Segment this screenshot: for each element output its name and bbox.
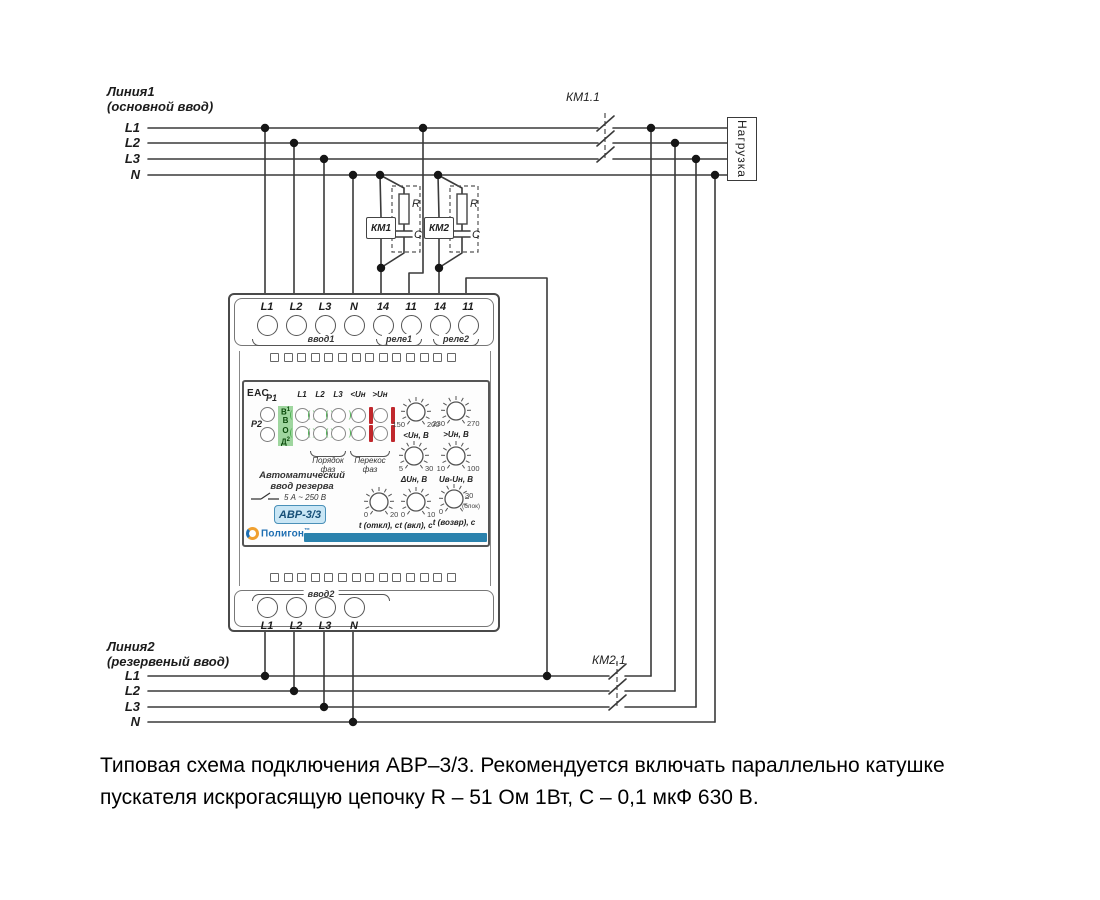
terminal-label: 14 <box>369 301 397 313</box>
contact-rating: 5 А ~ 250 В <box>250 492 326 502</box>
vent-slot <box>379 353 388 362</box>
wire-label-line2-N: N <box>110 714 140 729</box>
terminal-label: N <box>340 620 368 632</box>
knob-scale-min: 0 <box>385 510 405 519</box>
led-<Uн-row2 <box>351 426 366 441</box>
terminal-top-11-5: 11 <box>397 301 425 336</box>
terminal-screw <box>344 315 365 336</box>
line2-device-drops <box>265 632 353 722</box>
vent-slot <box>406 573 415 582</box>
device-title-line2: ввод резерва <box>250 481 354 492</box>
knob-caption: t (возвр), с <box>416 518 492 527</box>
wire-label-line2-L3: L3 <box>110 699 140 714</box>
knob-scale-min: 10 <box>425 464 445 473</box>
vent-slot <box>297 573 306 582</box>
terminal-top-11-7: 11 <box>454 301 482 336</box>
wire-label-line1-L1: L1 <box>110 120 140 135</box>
led-column-header: L1 <box>292 390 312 399</box>
p2-label: P2 <box>251 419 262 429</box>
terminal-screw <box>286 597 307 618</box>
wire-label-line1-L3: L3 <box>110 151 140 166</box>
led-column-header: L3 <box>328 390 348 399</box>
terminal-label: N <box>340 301 368 313</box>
knob-scale-min: 0 <box>348 510 368 519</box>
wire-label-line2-L1: L1 <box>110 668 140 683</box>
vent-slot <box>392 353 401 362</box>
knob-scale-max: 100 <box>467 464 487 473</box>
terminal-screw <box>344 597 365 618</box>
terminal-label: L3 <box>311 620 339 632</box>
vent-slot <box>379 573 388 582</box>
line1-title-text: Линия1 <box>107 84 213 99</box>
knob-scale-min: 5 <box>383 464 403 473</box>
group-rele1-bracket: реле1 <box>376 339 422 346</box>
brand-icon <box>246 527 259 540</box>
line1-subtitle: (основной ввод) <box>107 99 213 114</box>
knob-note: (блок) <box>462 503 488 510</box>
resistor2-label: R <box>470 198 478 210</box>
wire-label-line1-L2: L2 <box>110 135 140 150</box>
terminal-screw <box>430 315 451 336</box>
terminal-screw <box>257 315 278 336</box>
right-sidewall <box>490 351 491 586</box>
resistor2 <box>457 194 467 224</box>
vent-slot <box>406 353 415 362</box>
p1-led <box>260 407 275 422</box>
knob-scale-min: 150 <box>385 420 405 429</box>
terminal-screw <box>373 315 394 336</box>
terminal-label: L3 <box>311 301 339 313</box>
line2-wires <box>148 676 715 722</box>
group-rele2-label: реле2 <box>439 334 473 344</box>
vent-slot <box>392 573 401 582</box>
vent-slot <box>270 573 279 582</box>
capacitor2-label: C <box>472 229 480 241</box>
model-badge: АВР-3/3 <box>274 505 326 524</box>
terminal-label: 14 <box>426 301 454 313</box>
km21-label: КМ2.1 <box>592 653 626 667</box>
load-box: Нагрузка <box>727 117 757 181</box>
load-verticals <box>651 128 715 722</box>
terminal-top-L2-1: L2 <box>282 301 310 336</box>
led-L3-row1 <box>331 408 346 423</box>
wire-label-line1-N: N <box>110 167 140 182</box>
vent-slot <box>352 353 361 362</box>
terminal-top-N-3: N <box>340 301 368 336</box>
vent-slot <box>420 573 429 582</box>
terminal-screw <box>401 315 422 336</box>
vent-slot <box>311 353 320 362</box>
vent-slot <box>447 573 456 582</box>
front-panel: ЕАС P1 P2 В1ВОД2 L1L2L3<Uн>Uн Порядок фа… <box>242 380 490 547</box>
vent-slot <box>284 353 293 362</box>
terminal-bottom-L1: L1 <box>253 587 281 632</box>
terminal-bottom-N: N <box>340 587 368 632</box>
schematic-canvas: Линия1 (основной ввод) Линия2 (резервены… <box>0 0 1100 900</box>
vent-slot <box>420 353 429 362</box>
knob-2: 230270>Uн, В <box>424 391 488 441</box>
brand-bar <box>304 533 487 542</box>
terminal-bottom-L2: L2 <box>282 587 310 632</box>
vent-slot <box>297 353 306 362</box>
line1-wires <box>148 128 727 175</box>
vent-slot <box>324 353 333 362</box>
vent-slot <box>324 573 333 582</box>
km1-coil-box: КМ1 <box>366 217 396 239</box>
vent-slot <box>365 573 374 582</box>
capacitor1-label: C <box>414 229 422 241</box>
terminal-screw <box>257 597 278 618</box>
terminal-label: L1 <box>253 620 281 632</box>
knob-scale-max: 30 <box>465 491 485 500</box>
bottom-terminals-row: L1L2L3N <box>230 587 498 633</box>
vent-slot <box>447 353 456 362</box>
line2-title: Линия2 (резервеный ввод) <box>107 639 229 669</box>
brand-logo: Полигон™ <box>246 527 310 540</box>
vent-slot <box>311 573 320 582</box>
line2-subtitle: (резервеный ввод) <box>107 654 229 669</box>
terminal-label: L1 <box>253 301 281 313</box>
terminal-top-L1-0: L1 <box>253 301 281 336</box>
led-<Uн-row1 <box>351 408 366 423</box>
vent-slot <box>338 353 347 362</box>
p1-label: P1 <box>266 393 277 403</box>
wire-label-line2-L2: L2 <box>110 683 140 698</box>
relay1-common-feed <box>409 128 423 293</box>
led-column-L3: L3 <box>328 390 348 452</box>
avr-device: L1L2L3N14111411 ввод1 реле1 реле2 ЕАС P1… <box>228 293 500 632</box>
terminal-label: 11 <box>397 301 425 313</box>
p2-led <box>260 427 275 442</box>
terminal-label: L2 <box>282 301 310 313</box>
vent-slot <box>352 573 361 582</box>
terminal-top-L3-2: L3 <box>311 301 339 336</box>
rating-text: 5 А ~ 250 В <box>284 493 326 502</box>
vent-slot <box>433 353 442 362</box>
brand-text: Полигон <box>261 528 304 539</box>
terminal-screw <box>458 315 479 336</box>
terminal-top-14-6: 14 <box>426 301 454 336</box>
contact-symbol-icon <box>250 492 280 502</box>
load-label: Нагрузка <box>735 120 749 178</box>
terminal-bottom-L3: L3 <box>311 587 339 632</box>
group-vvod1-bracket: ввод1 <box>252 339 390 346</box>
led-column-<Uн: <Uн <box>348 390 368 452</box>
vent-slot <box>338 573 347 582</box>
brand-name: Полигон™ <box>261 528 310 539</box>
group-vvod1-label: ввод1 <box>304 334 339 344</box>
km11-label: КМ1.1 <box>566 90 600 104</box>
terminal-top-14-4: 14 <box>369 301 397 336</box>
led-column-L1: L1 <box>292 390 312 452</box>
caption-text: Типовая схема подключения АВР–3/3. Реком… <box>100 750 1015 813</box>
group-rele1-label: реле1 <box>382 334 416 344</box>
led-column-header: <Uн <box>348 390 368 399</box>
resistor1 <box>399 194 409 224</box>
knob-7: 030(блок)t (возвр), с <box>422 479 486 529</box>
device-title-line1: Автоматический <box>250 470 354 481</box>
left-sidewall <box>239 351 240 586</box>
knob-scale-min: 0 <box>423 507 443 516</box>
km2-coil-box: КМ2 <box>424 217 454 239</box>
group-rele2-bracket: реле2 <box>433 339 479 346</box>
terminal-screw <box>315 315 336 336</box>
led-column-header: L2 <box>310 390 330 399</box>
vent-slot <box>270 353 279 362</box>
line1-device-drops <box>265 128 353 293</box>
led-column-L2: L2 <box>310 390 330 452</box>
vent-slot <box>365 353 374 362</box>
vent-slot <box>284 573 293 582</box>
line1-title: Линия1 (основной ввод) <box>107 84 213 114</box>
led-L3-row2 <box>331 426 346 441</box>
knob-scale-max: 270 <box>467 419 487 428</box>
terminal-label: 11 <box>454 301 482 313</box>
vent-slot <box>433 573 442 582</box>
terminal-screw <box>315 597 336 618</box>
line2-title-text: Линия2 <box>107 639 229 654</box>
knob-scale-min: 230 <box>425 419 445 428</box>
terminal-screw <box>286 315 307 336</box>
resistor1-label: R <box>412 198 420 210</box>
terminal-label: L2 <box>282 620 310 632</box>
